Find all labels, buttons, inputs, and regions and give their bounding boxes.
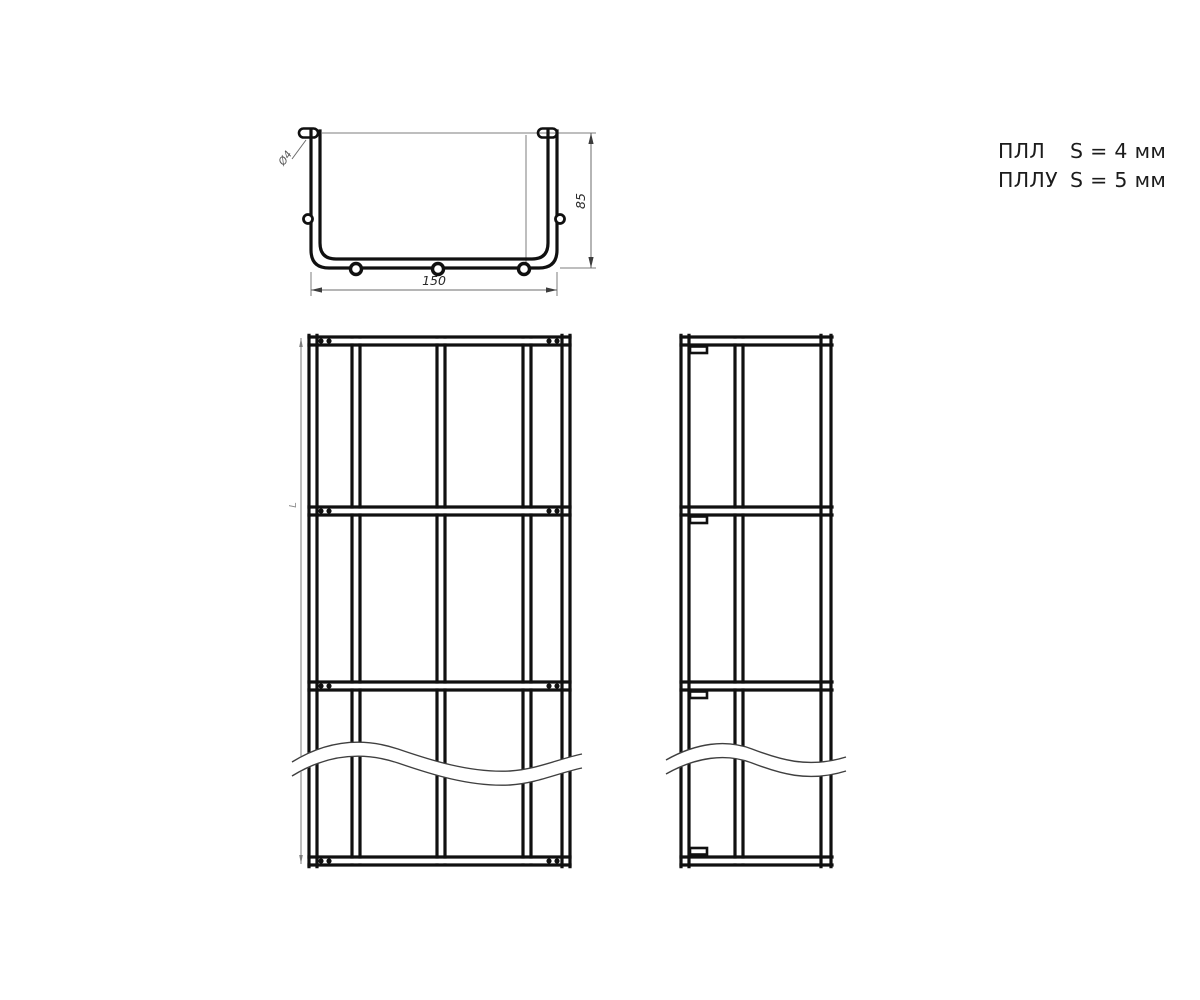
width-dimension-label: 150 [422,273,446,288]
left-wall-tab [304,215,313,224]
outer-rails [681,335,831,866]
arrowhead [546,287,557,292]
rung-tab [690,517,707,524]
legend-item-name: ПЛЛУ [998,168,1066,193]
break-wave [666,744,846,777]
height-dimension-label: 85 [573,193,588,209]
arrowhead [588,133,593,144]
channel-inner-wall [320,131,548,259]
internal-bars [735,339,743,863]
leader-label: Ø4 [276,149,295,169]
legend-item-spec: S = 5 мм [1070,168,1166,193]
channel-outer-wall [311,131,557,268]
rung-tab [690,347,707,354]
diameter-leader: Ø4 [276,140,306,169]
side-view [666,335,846,866]
legend-item-name: ПЛЛ [998,139,1066,164]
length-dimension-label: L [288,502,299,508]
arrowhead [311,287,322,292]
height-dimension: 85 [573,133,594,268]
legend: ПЛЛ S = 4 мм ПЛЛУ S = 5 мм [998,139,1166,193]
legend-item-spec: S = 4 мм [1070,139,1166,164]
arrowhead [299,855,303,864]
length-dimension: L [288,338,303,864]
arrowhead [299,338,303,347]
arrowhead [588,257,593,268]
drawing-page: 150 85 Ø4 [0,0,1200,1000]
foot-nub [519,264,530,275]
left-top-hook [299,129,318,138]
right-wall-tab [556,215,565,224]
foot-nub [351,264,362,275]
rung-tab [690,848,707,855]
rungs [681,337,832,865]
front-view: L [288,335,582,866]
section-view: 150 85 Ø4 [276,129,596,297]
width-dimension: 150 [311,273,557,293]
rung-tab [690,692,707,699]
